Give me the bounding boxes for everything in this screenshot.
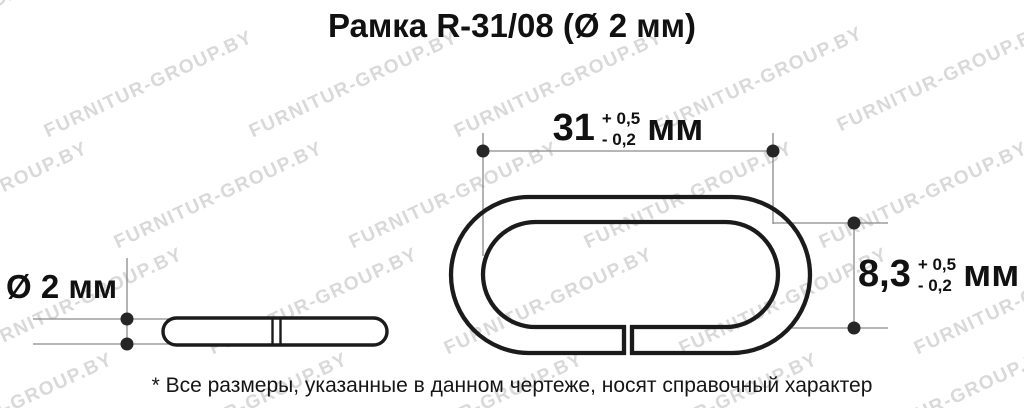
tolerance-plus: + 0,5 xyxy=(602,108,640,129)
dimension-width-unit: мм xyxy=(647,109,703,147)
dimension-width-label: 31 + 0,5 - 0,2 мм xyxy=(483,106,773,151)
wire-side-view-outline xyxy=(163,318,387,345)
technical-drawing-page: FURNITUR-GROUP.BY FURNITUR-GROUP.BY FURN… xyxy=(0,0,1024,408)
tolerance-minus: - 0,2 xyxy=(918,275,956,296)
footnote-text: * Все размеры, указанные в данном чертеж… xyxy=(0,374,1024,398)
dimension-dot xyxy=(848,322,861,335)
wire-diameter-label: Ø 2 мм xyxy=(6,268,117,306)
dimension-width-value: 31 xyxy=(553,109,595,147)
dimension-dot xyxy=(121,313,134,326)
tolerance-minus: - 0,2 xyxy=(602,129,640,150)
ring-front-view-outline xyxy=(451,197,810,353)
dimension-height-value: 8,3 xyxy=(858,255,911,293)
tolerance-plus: + 0,5 xyxy=(918,254,956,275)
dimension-height-label: 8,3 + 0,5 - 0,2 мм xyxy=(858,252,1019,297)
dimension-height-tolerance: + 0,5 - 0,2 xyxy=(918,252,956,297)
drawing-canvas xyxy=(0,0,1024,408)
dimension-dot xyxy=(121,338,134,351)
dimension-height-unit: мм xyxy=(963,255,1019,293)
page-title: Рамка R-31/08 (Ø 2 мм) xyxy=(0,7,1024,45)
dimension-dot xyxy=(848,217,861,230)
dimension-width-tolerance: + 0,5 - 0,2 xyxy=(602,106,640,151)
